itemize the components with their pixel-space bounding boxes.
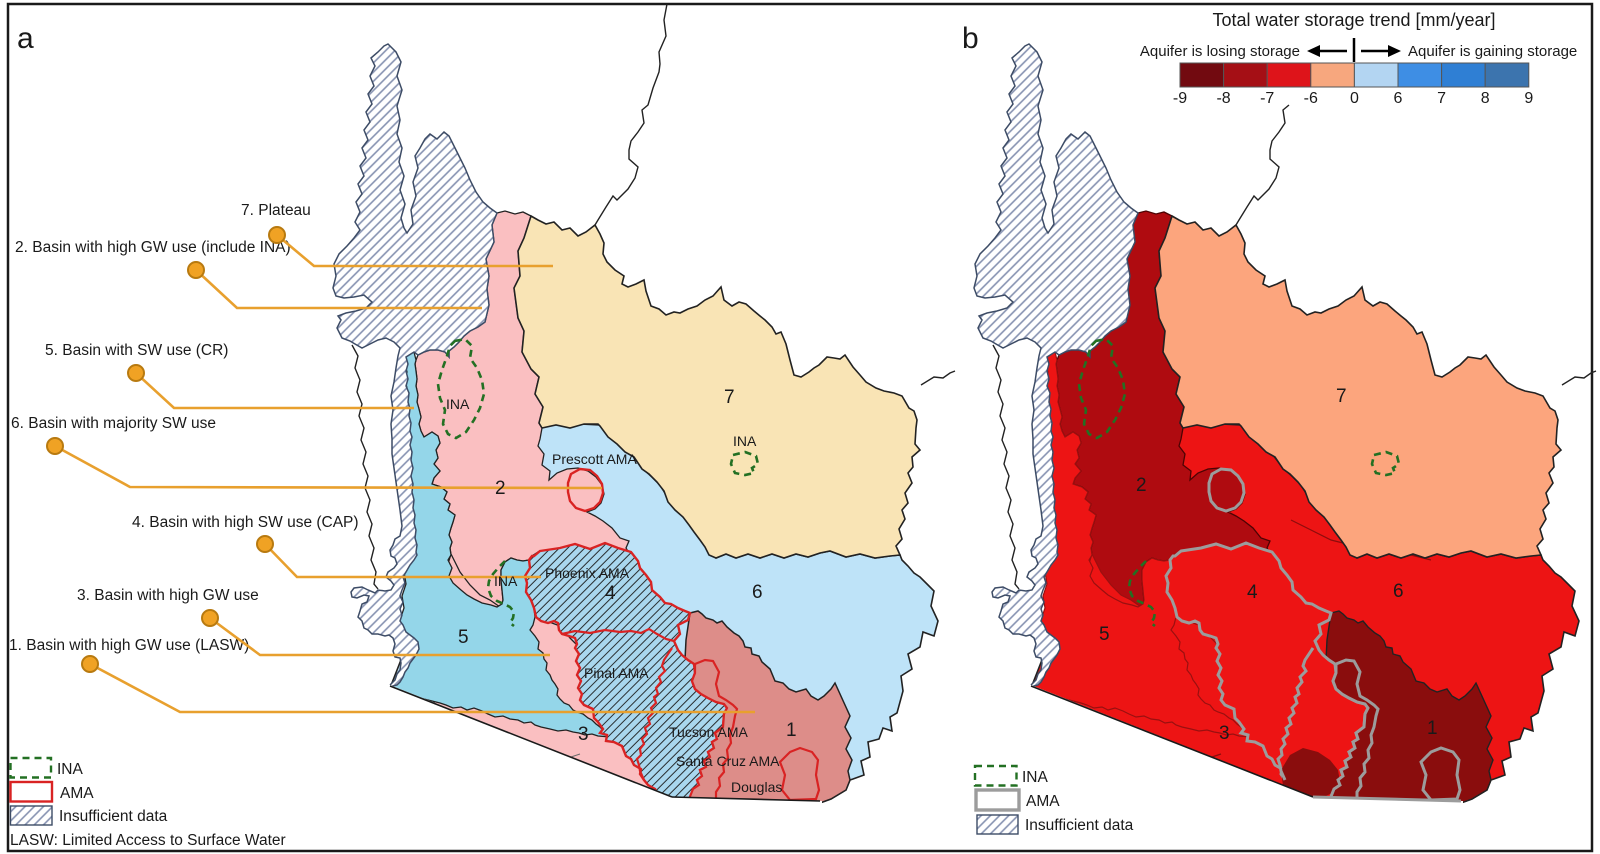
svg-text:6. Basin with majority SW use: 6. Basin with majority SW use	[11, 415, 216, 432]
svg-text:-8: -8	[1216, 90, 1230, 107]
svg-text:6: 6	[1394, 90, 1403, 107]
svg-text:AMA: AMA	[60, 785, 94, 802]
svg-text:-6: -6	[1304, 90, 1318, 107]
svg-text:4. Basin with high SW use (CAP: 4. Basin with high SW use (CAP)	[132, 514, 359, 531]
svg-text:5: 5	[1099, 624, 1110, 645]
svg-text:Aquifer is gaining storage: Aquifer is gaining storage	[1408, 43, 1577, 60]
svg-text:9: 9	[1524, 90, 1533, 107]
svg-text:3: 3	[578, 724, 589, 745]
svg-text:Pinal AMA: Pinal AMA	[584, 665, 649, 681]
svg-text:8: 8	[1481, 90, 1490, 107]
svg-text:INA: INA	[494, 573, 518, 589]
svg-text:Douglas: Douglas	[731, 779, 782, 795]
svg-text:4: 4	[605, 583, 616, 604]
svg-text:1: 1	[1427, 718, 1438, 739]
svg-text:7. Plateau: 7. Plateau	[241, 202, 311, 219]
svg-text:0: 0	[1350, 90, 1359, 107]
svg-text:1. Basin with high GW use (LAS: 1. Basin with high GW use (LASW)	[9, 637, 249, 654]
svg-text:2: 2	[1136, 475, 1147, 496]
svg-text:a: a	[17, 22, 34, 55]
svg-text:-7: -7	[1260, 90, 1274, 107]
svg-text:5. Basin with SW use (CR): 5. Basin with SW use (CR)	[45, 342, 228, 359]
svg-text:Total water storage trend [mm/: Total water storage trend [mm/year]	[1212, 10, 1495, 30]
svg-text:Prescott AMA: Prescott AMA	[552, 451, 637, 467]
svg-text:-9: -9	[1173, 90, 1187, 107]
svg-text:INA: INA	[57, 761, 84, 778]
svg-text:5: 5	[458, 627, 469, 648]
svg-text:3. Basin with high GW use: 3. Basin with high GW use	[77, 587, 259, 604]
svg-text:Aquifer is losing storage: Aquifer is losing storage	[1140, 43, 1300, 60]
svg-text:Phoenix AMA: Phoenix AMA	[545, 565, 630, 581]
svg-text:b: b	[962, 22, 979, 55]
svg-text:2. Basin with high GW use (inc: 2. Basin with high GW use (include INA)	[15, 239, 291, 256]
svg-text:7: 7	[1437, 90, 1446, 107]
svg-text:1: 1	[786, 720, 797, 741]
svg-text:Insufficient data: Insufficient data	[1025, 817, 1134, 834]
svg-text:4: 4	[1247, 582, 1258, 603]
svg-text:3: 3	[1219, 723, 1230, 744]
svg-text:7: 7	[1336, 386, 1347, 407]
svg-text:LASW: Limited Access to Surfac: LASW: Limited Access to Surface Water	[10, 832, 286, 849]
svg-text:7: 7	[724, 387, 735, 408]
svg-text:AMA: AMA	[1026, 793, 1060, 810]
svg-text:Tucson AMA: Tucson AMA	[669, 724, 749, 740]
svg-text:Santa Cruz AMA: Santa Cruz AMA	[676, 753, 780, 769]
svg-text:INA: INA	[1022, 769, 1049, 786]
svg-text:6: 6	[1393, 581, 1404, 602]
svg-text:Insufficient data: Insufficient data	[59, 808, 168, 825]
svg-text:6: 6	[752, 582, 763, 603]
svg-text:INA: INA	[446, 396, 470, 412]
svg-text:2: 2	[495, 478, 506, 499]
svg-text:INA: INA	[733, 433, 757, 449]
